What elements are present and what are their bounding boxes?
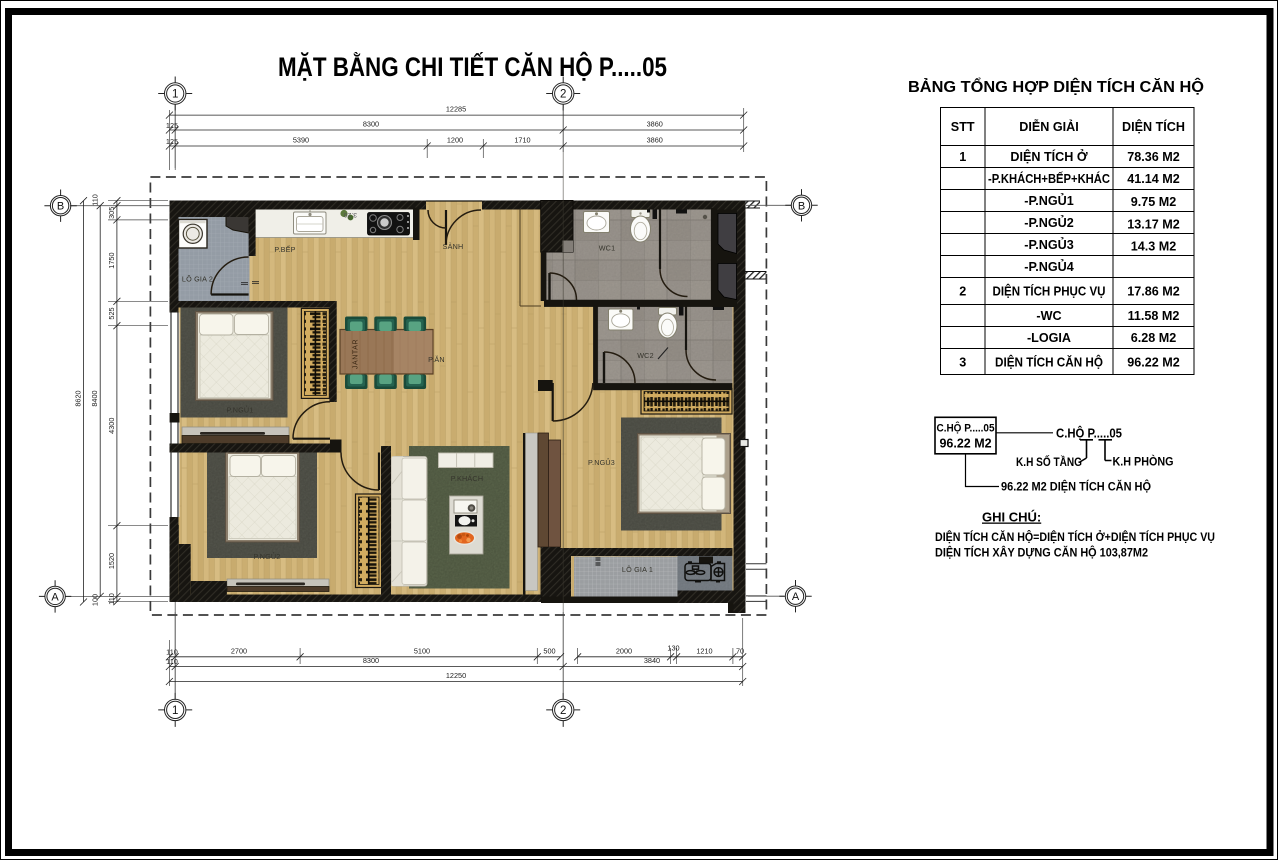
svg-text:LÔ GIA 1: LÔ GIA 1 — [622, 565, 653, 574]
svg-text:3840: 3840 — [644, 656, 660, 665]
svg-text:2: 2 — [560, 705, 566, 717]
svg-text:8400: 8400 — [90, 390, 99, 406]
svg-text:BẢNG TỔNG HỢP DIỆN TÍCH CĂN HỘ: BẢNG TỔNG HỢP DIỆN TÍCH CĂN HỘ — [908, 77, 1204, 96]
svg-text:-WC: -WC — [1036, 309, 1061, 323]
svg-text:125: 125 — [166, 137, 178, 146]
svg-text:1: 1 — [172, 705, 178, 717]
svg-text:P.BẾP: P.BẾP — [274, 244, 295, 254]
svg-text:1200: 1200 — [447, 135, 463, 144]
svg-text:110: 110 — [166, 647, 178, 656]
svg-text:C.HỘ P.....05: C.HỘ P.....05 — [937, 422, 995, 435]
svg-text:70: 70 — [736, 646, 744, 655]
svg-text:GHI CHÚ:: GHI CHÚ: — [982, 510, 1041, 525]
svg-text:P.ĂN: P.ĂN — [428, 355, 445, 364]
svg-text:525: 525 — [107, 307, 116, 319]
svg-text:DIỆN TÍCH CĂN HỘ=DIỆN TÍCH Ở+D: DIỆN TÍCH CĂN HỘ=DIỆN TÍCH Ở+DIỆN TÍCH P… — [935, 529, 1215, 544]
svg-text:-P.NGỦ3: -P.NGỦ3 — [1024, 237, 1073, 252]
svg-text:1520: 1520 — [107, 553, 116, 569]
svg-text:14.3 M2: 14.3 M2 — [1131, 240, 1177, 254]
svg-text:-P.NGỦ4: -P.NGỦ4 — [1024, 259, 1073, 274]
svg-text:A: A — [792, 591, 800, 603]
svg-text:6.28 M2: 6.28 M2 — [1131, 331, 1177, 345]
svg-text:1: 1 — [172, 89, 178, 101]
svg-text:SẢNH: SẢNH — [443, 242, 464, 251]
svg-text:-P.NGỦ1: -P.NGỦ1 — [1024, 193, 1073, 208]
svg-text:78.36 M2: 78.36 M2 — [1127, 150, 1180, 164]
svg-text:17.86 M2: 17.86 M2 — [1127, 285, 1180, 299]
svg-text:8300: 8300 — [363, 119, 379, 128]
svg-text:130: 130 — [667, 643, 679, 652]
svg-text:3.20: 3.20 — [344, 211, 357, 218]
svg-text:-P.NGỦ2: -P.NGỦ2 — [1024, 215, 1073, 230]
svg-text:96.22 M2 DIỆN TÍCH CĂN HỘ: 96.22 M2 DIỆN TÍCH CĂN HỘ — [1001, 479, 1151, 494]
svg-text:B: B — [798, 200, 805, 212]
svg-text:8620: 8620 — [74, 390, 83, 406]
svg-text:P.NGỦ1: P.NGỦ1 — [226, 406, 253, 415]
svg-text:12285: 12285 — [446, 105, 466, 114]
svg-text:DIỄN GIẢI: DIỄN GIẢI — [1019, 119, 1078, 134]
svg-text:K.H PHÒNG: K.H PHÒNG — [1113, 454, 1174, 469]
svg-text:MẶT BẰNG CHI TIẾT CĂN HỘ P...: MẶT BẰNG CHI TIẾT CĂN HỘ P.....05 — [278, 52, 667, 82]
svg-text:C.HỘ P.....05: C.HỘ P.....05 — [1056, 426, 1122, 441]
svg-text:100: 100 — [91, 594, 100, 606]
svg-text:2700: 2700 — [231, 646, 247, 655]
svg-text:11.58 M2: 11.58 M2 — [1128, 309, 1180, 323]
svg-text:3860: 3860 — [647, 135, 663, 144]
svg-text:-LOGIA: -LOGIA — [1027, 331, 1071, 345]
svg-text:DIỆN TÍCH: DIỆN TÍCH — [1122, 119, 1185, 134]
svg-text:WC1: WC1 — [599, 244, 616, 253]
svg-text:DIỆN TÍCH PHỤC VỤ: DIỆN TÍCH PHỤC VỤ — [993, 284, 1106, 299]
svg-text:41.14 M2: 41.14 M2 — [1127, 172, 1180, 186]
svg-text:3860: 3860 — [647, 119, 663, 128]
svg-text:A: A — [51, 591, 59, 603]
svg-text:2000: 2000 — [616, 646, 632, 655]
svg-text:STT: STT — [951, 120, 975, 134]
svg-text:5100: 5100 — [414, 646, 430, 655]
svg-text:9.75 M2: 9.75 M2 — [1131, 195, 1177, 209]
svg-text:-P.KHÁCH+BẾP+KHÁC: -P.KHÁCH+BẾP+KHÁC — [988, 171, 1110, 186]
svg-text:110: 110 — [166, 657, 178, 666]
svg-text:B: B — [57, 201, 64, 213]
svg-text:96.22 M2: 96.22 M2 — [939, 437, 991, 451]
svg-text:P.NGỦ3: P.NGỦ3 — [588, 458, 615, 467]
svg-text:8300: 8300 — [363, 656, 379, 665]
svg-text:1750: 1750 — [107, 252, 116, 268]
svg-text:3: 3 — [959, 356, 966, 370]
svg-text:5390: 5390 — [293, 135, 309, 144]
svg-text:305: 305 — [107, 207, 116, 219]
svg-text:110: 110 — [91, 194, 100, 206]
svg-text:1710: 1710 — [514, 135, 530, 144]
svg-text:2: 2 — [560, 89, 566, 101]
svg-text:1210: 1210 — [696, 646, 712, 655]
svg-text:DIỆN TÍCH CĂN HỘ: DIỆN TÍCH CĂN HỘ — [995, 355, 1103, 370]
svg-text:2: 2 — [959, 285, 966, 299]
svg-text:LÔ GIA 2: LÔ GIA 2 — [182, 275, 213, 284]
svg-text:DIỆN TÍCH Ở: DIỆN TÍCH Ở — [1010, 149, 1087, 164]
svg-text:WC2: WC2 — [637, 351, 654, 360]
svg-text:4300: 4300 — [107, 418, 116, 434]
svg-text:DIỆN TÍCH XÂY DỰNG CĂN HỘ 103,: DIỆN TÍCH XÂY DỰNG CĂN HỘ 103,87M2 — [935, 545, 1148, 560]
svg-text:P.NGỦ2: P.NGỦ2 — [253, 552, 280, 561]
svg-text:P.KHÁCH: P.KHÁCH — [451, 474, 483, 483]
svg-text:125: 125 — [166, 121, 178, 130]
svg-text:12250: 12250 — [446, 671, 466, 680]
svg-text:1: 1 — [959, 150, 966, 164]
svg-text:500: 500 — [543, 646, 555, 655]
svg-text:96.22 M2: 96.22 M2 — [1127, 356, 1180, 370]
svg-text:110: 110 — [107, 593, 116, 605]
svg-text:JANTAR: JANTAR — [353, 339, 360, 369]
svg-text:K.H SỐ TẦNG: K.H SỐ TẦNG — [1016, 454, 1082, 469]
svg-text:13.17 M2: 13.17 M2 — [1127, 218, 1180, 232]
